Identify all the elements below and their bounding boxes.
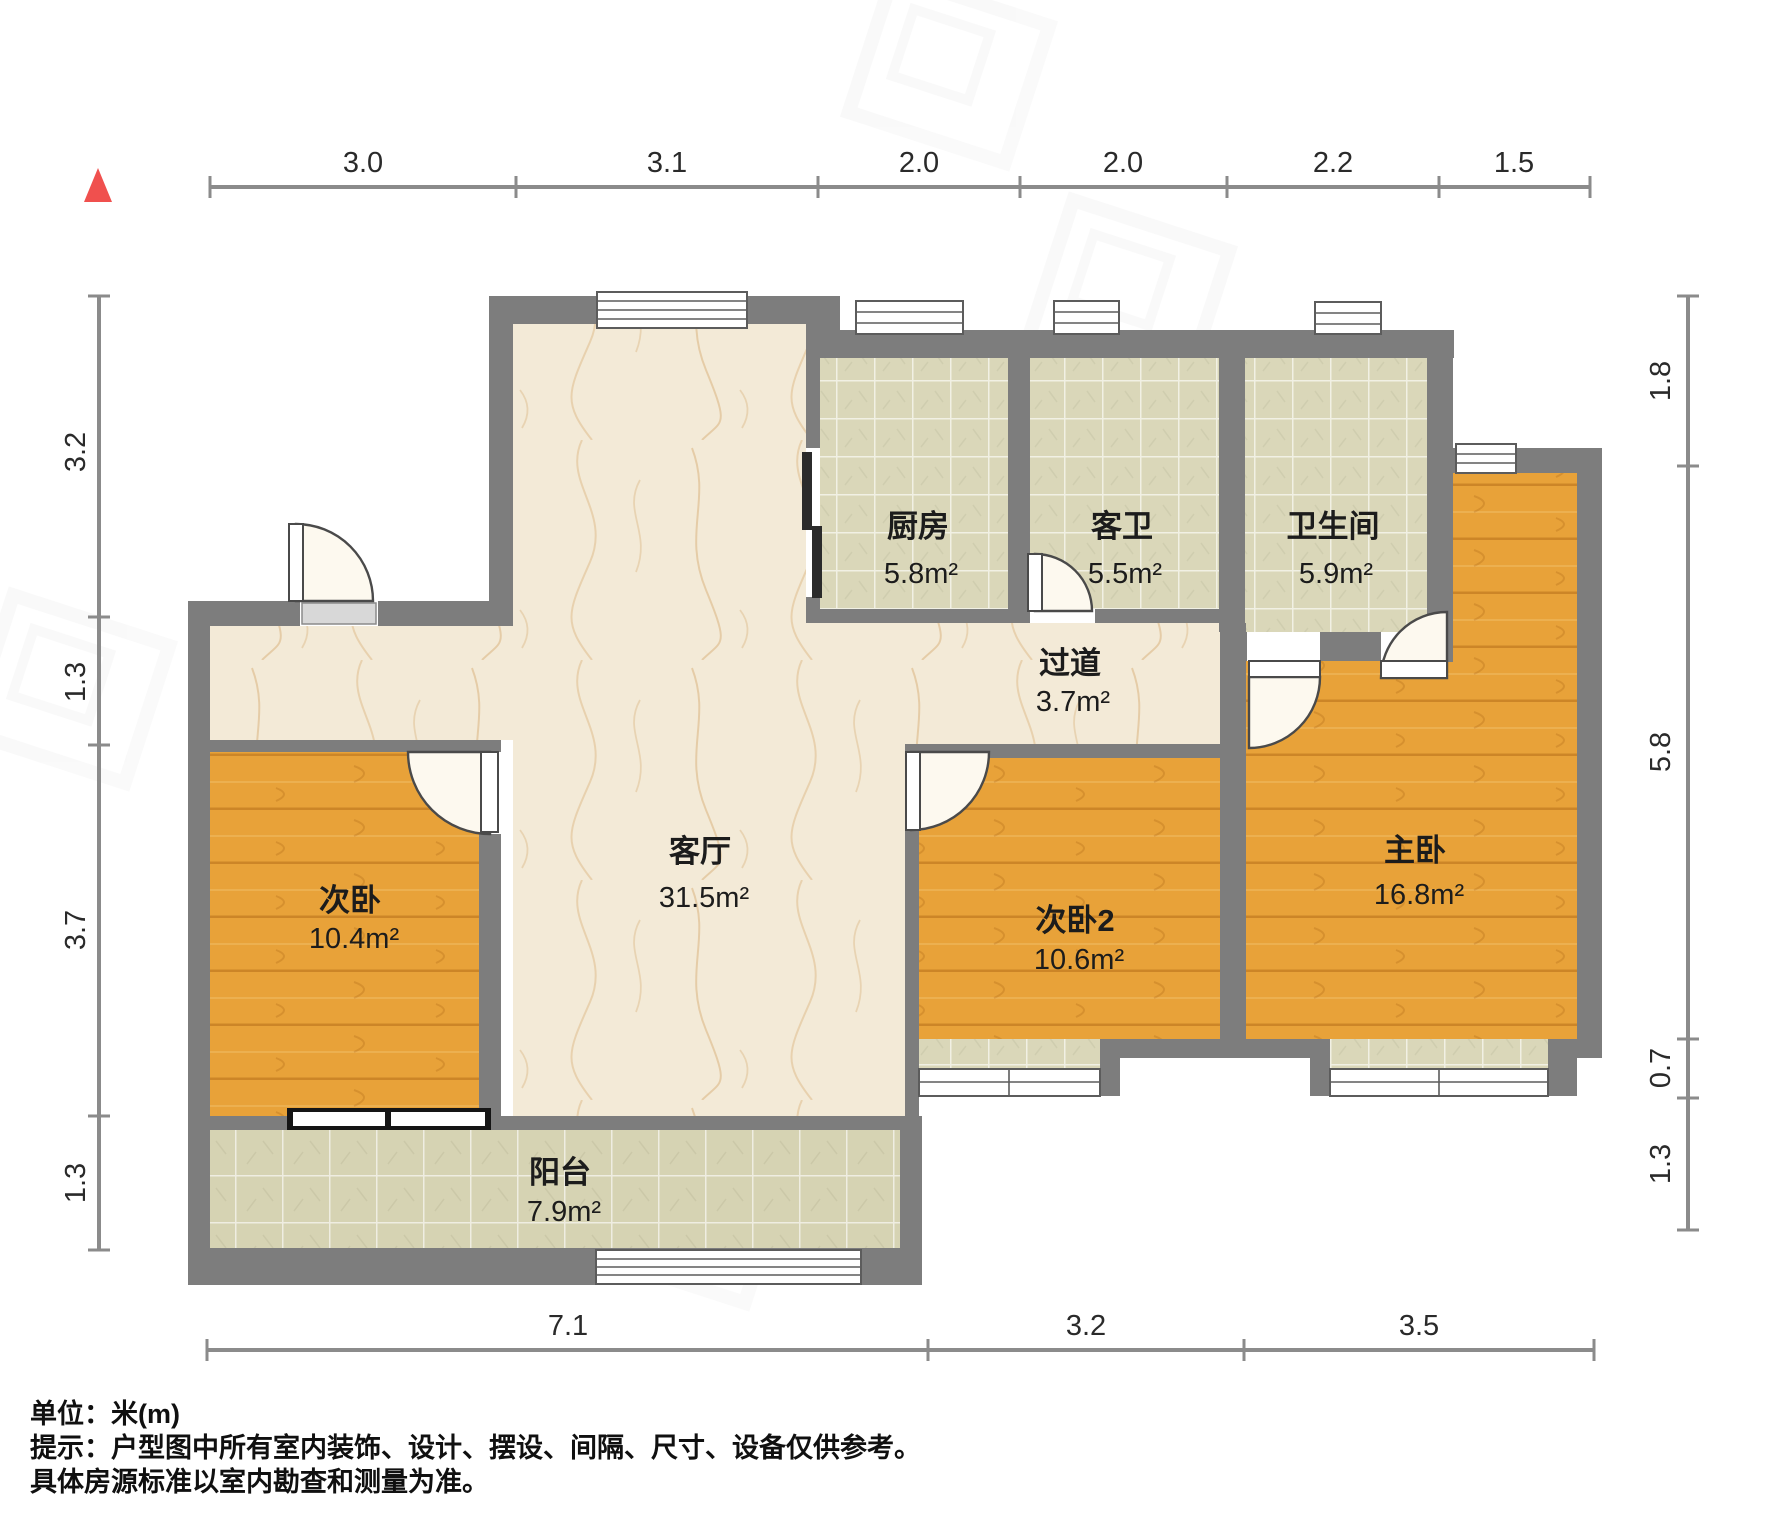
- room-label-living-area: 31.5m²: [659, 882, 750, 914]
- room-label-kitchen-area: 5.8m²: [884, 558, 958, 590]
- dim-left-2: 3.7: [60, 910, 92, 950]
- dim-bottom-2: 3.5: [1399, 1310, 1439, 1342]
- window-guest-bath: [1054, 301, 1119, 334]
- window-bay-master: [1330, 1069, 1548, 1096]
- room-label-bathroom-name: 卫生间: [1287, 509, 1380, 544]
- dim-left-3: 1.3: [60, 1163, 92, 1203]
- window-living-top: [597, 292, 747, 328]
- room-label-bedroom-second-name: 次卧: [319, 883, 381, 918]
- dim-top-1: 3.1: [647, 147, 687, 179]
- room-label-bedroom-second-area: 10.4m²: [309, 923, 400, 955]
- dim-right-1: 5.8: [1645, 732, 1677, 772]
- window-bathroom: [1315, 302, 1381, 334]
- dimension-bottom: 7.1 3.2 3.5: [207, 1310, 1594, 1361]
- floor-plan-canvas: 客厅 31.5m² 厨房 5.8m² 客卫 5.5m² 卫生间 5.9m² 过道…: [0, 0, 1789, 1535]
- room-label-bathroom-area: 5.9m²: [1299, 558, 1373, 590]
- room-label-balcony-area: 7.9m²: [527, 1196, 601, 1228]
- wardrobe: [287, 1108, 491, 1130]
- disclaimer-line-2: 具体房源标准以室内勘查和测量为准。: [30, 1460, 489, 1499]
- room-label-bedroom-third-area: 10.6m²: [1034, 944, 1125, 976]
- dim-right-3: 1.3: [1645, 1144, 1677, 1184]
- dimension-top: 3.0 3.1 2.0 2.0 2.2 1.5: [210, 147, 1590, 198]
- dim-bottom-0: 7.1: [548, 1310, 588, 1342]
- room-bedroom-master-floor-upper: [1442, 473, 1577, 661]
- window-master-top: [1456, 444, 1516, 473]
- room-living-floor-east: [806, 623, 905, 1116]
- room-entry-band-floor: [210, 623, 513, 740]
- dim-left-1: 1.3: [60, 662, 92, 702]
- dim-top-4: 2.2: [1313, 147, 1353, 179]
- room-label-kitchen-name: 厨房: [887, 509, 949, 544]
- room-label-bedroom-master-area: 16.8m²: [1374, 879, 1465, 911]
- dim-right-2: 0.7: [1645, 1048, 1677, 1088]
- floor-plan-page: 客厅 31.5m² 厨房 5.8m² 客卫 5.5m² 卫生间 5.9m² 过道…: [0, 0, 1789, 1535]
- dimension-right: 1.8 5.8 0.7 1.3: [1645, 296, 1699, 1230]
- window-bay-bedroom-third: [919, 1069, 1100, 1096]
- room-label-bedroom-third-name: 次卧2: [1035, 903, 1114, 938]
- room-living-floor: [513, 324, 806, 1116]
- room-label-hallway-name: 过道: [1039, 646, 1101, 681]
- dim-top-2: 2.0: [899, 147, 939, 179]
- dim-top-0: 3.0: [343, 147, 383, 179]
- dim-top-3: 2.0: [1103, 147, 1143, 179]
- room-label-bedroom-master-name: 主卧: [1384, 833, 1446, 868]
- window-kitchen: [856, 301, 963, 334]
- dim-right-0: 1.8: [1645, 361, 1677, 401]
- room-label-hallway-area: 3.7m²: [1036, 686, 1110, 718]
- dim-left-0: 3.2: [60, 432, 92, 472]
- room-bathroom-floor: [1245, 358, 1427, 632]
- room-label-living-name: 客厅: [669, 834, 731, 869]
- room-label-balcony-name: 阳台: [529, 1155, 591, 1190]
- dim-bottom-1: 3.2: [1066, 1310, 1106, 1342]
- entry-door: [289, 524, 378, 626]
- dimension-left: 3.2 1.3 3.7 1.3: [60, 296, 110, 1250]
- room-label-guest-bath-name: 客卫: [1091, 509, 1153, 544]
- room-label-guest-bath-area: 5.5m²: [1088, 558, 1162, 590]
- window-balcony: [596, 1250, 861, 1284]
- dim-top-5: 1.5: [1494, 147, 1534, 179]
